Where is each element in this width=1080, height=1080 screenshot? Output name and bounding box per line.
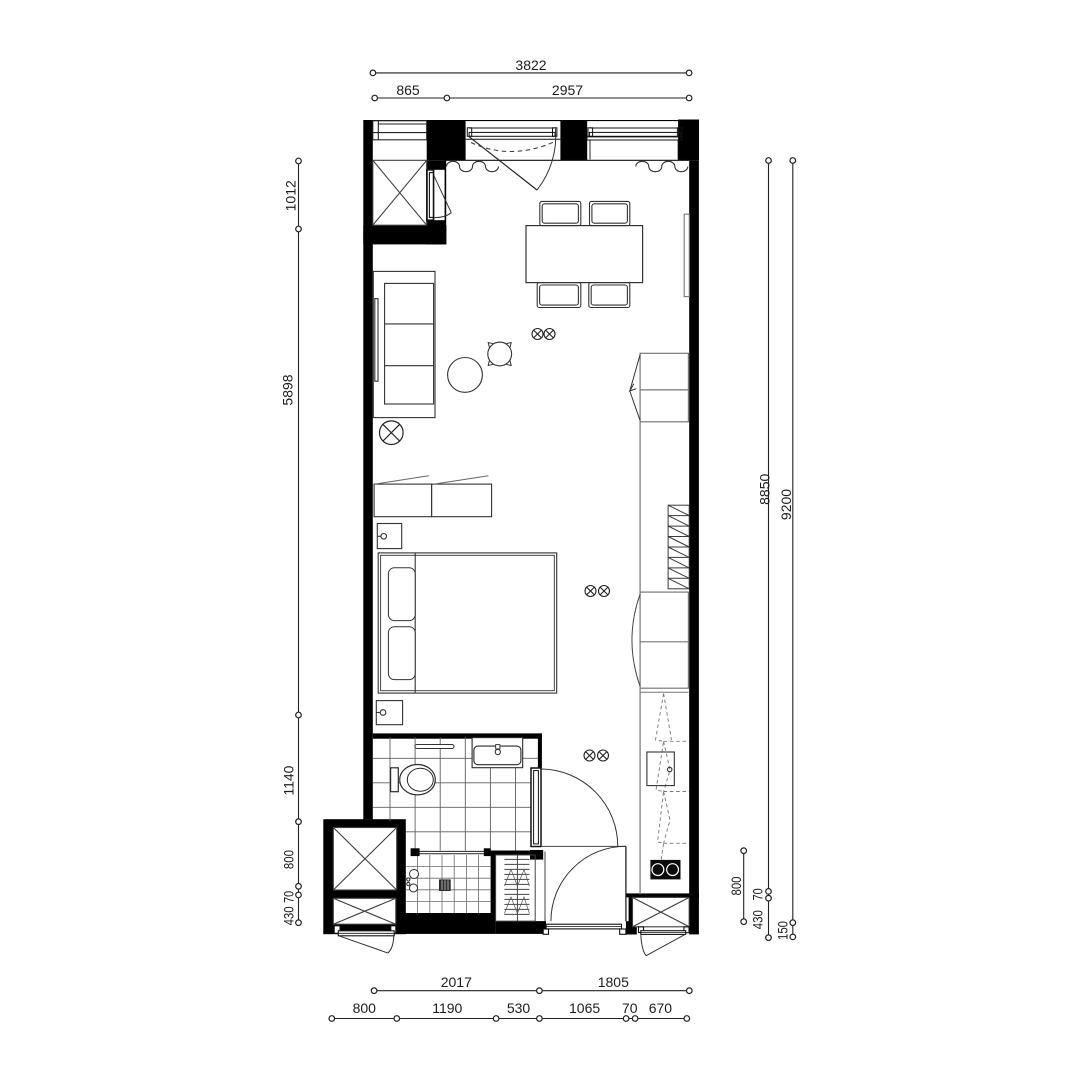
- svg-text:5898: 5898: [280, 374, 296, 405]
- svg-text:865: 865: [396, 82, 420, 98]
- svg-text:530: 530: [507, 1000, 531, 1016]
- svg-text:430: 430: [749, 910, 765, 929]
- svg-text:430: 430: [281, 906, 297, 925]
- svg-text:1012: 1012: [282, 180, 298, 211]
- svg-text:150: 150: [775, 921, 791, 940]
- svg-text:2017: 2017: [441, 974, 472, 990]
- svg-text:70: 70: [749, 888, 765, 900]
- svg-text:800: 800: [281, 850, 297, 869]
- svg-text:9200: 9200: [778, 489, 794, 520]
- svg-text:1805: 1805: [598, 974, 629, 990]
- svg-text:70: 70: [281, 891, 297, 903]
- svg-text:70: 70: [622, 1000, 638, 1016]
- svg-text:1190: 1190: [432, 1000, 462, 1016]
- svg-text:800: 800: [353, 1000, 377, 1016]
- svg-text:1065: 1065: [569, 1000, 600, 1016]
- svg-text:800: 800: [728, 876, 744, 895]
- svg-text:1140: 1140: [281, 765, 297, 795]
- svg-text:2957: 2957: [552, 82, 583, 98]
- svg-text:3822: 3822: [515, 57, 546, 73]
- svg-text:670: 670: [649, 1000, 673, 1016]
- svg-text:8850: 8850: [757, 474, 773, 505]
